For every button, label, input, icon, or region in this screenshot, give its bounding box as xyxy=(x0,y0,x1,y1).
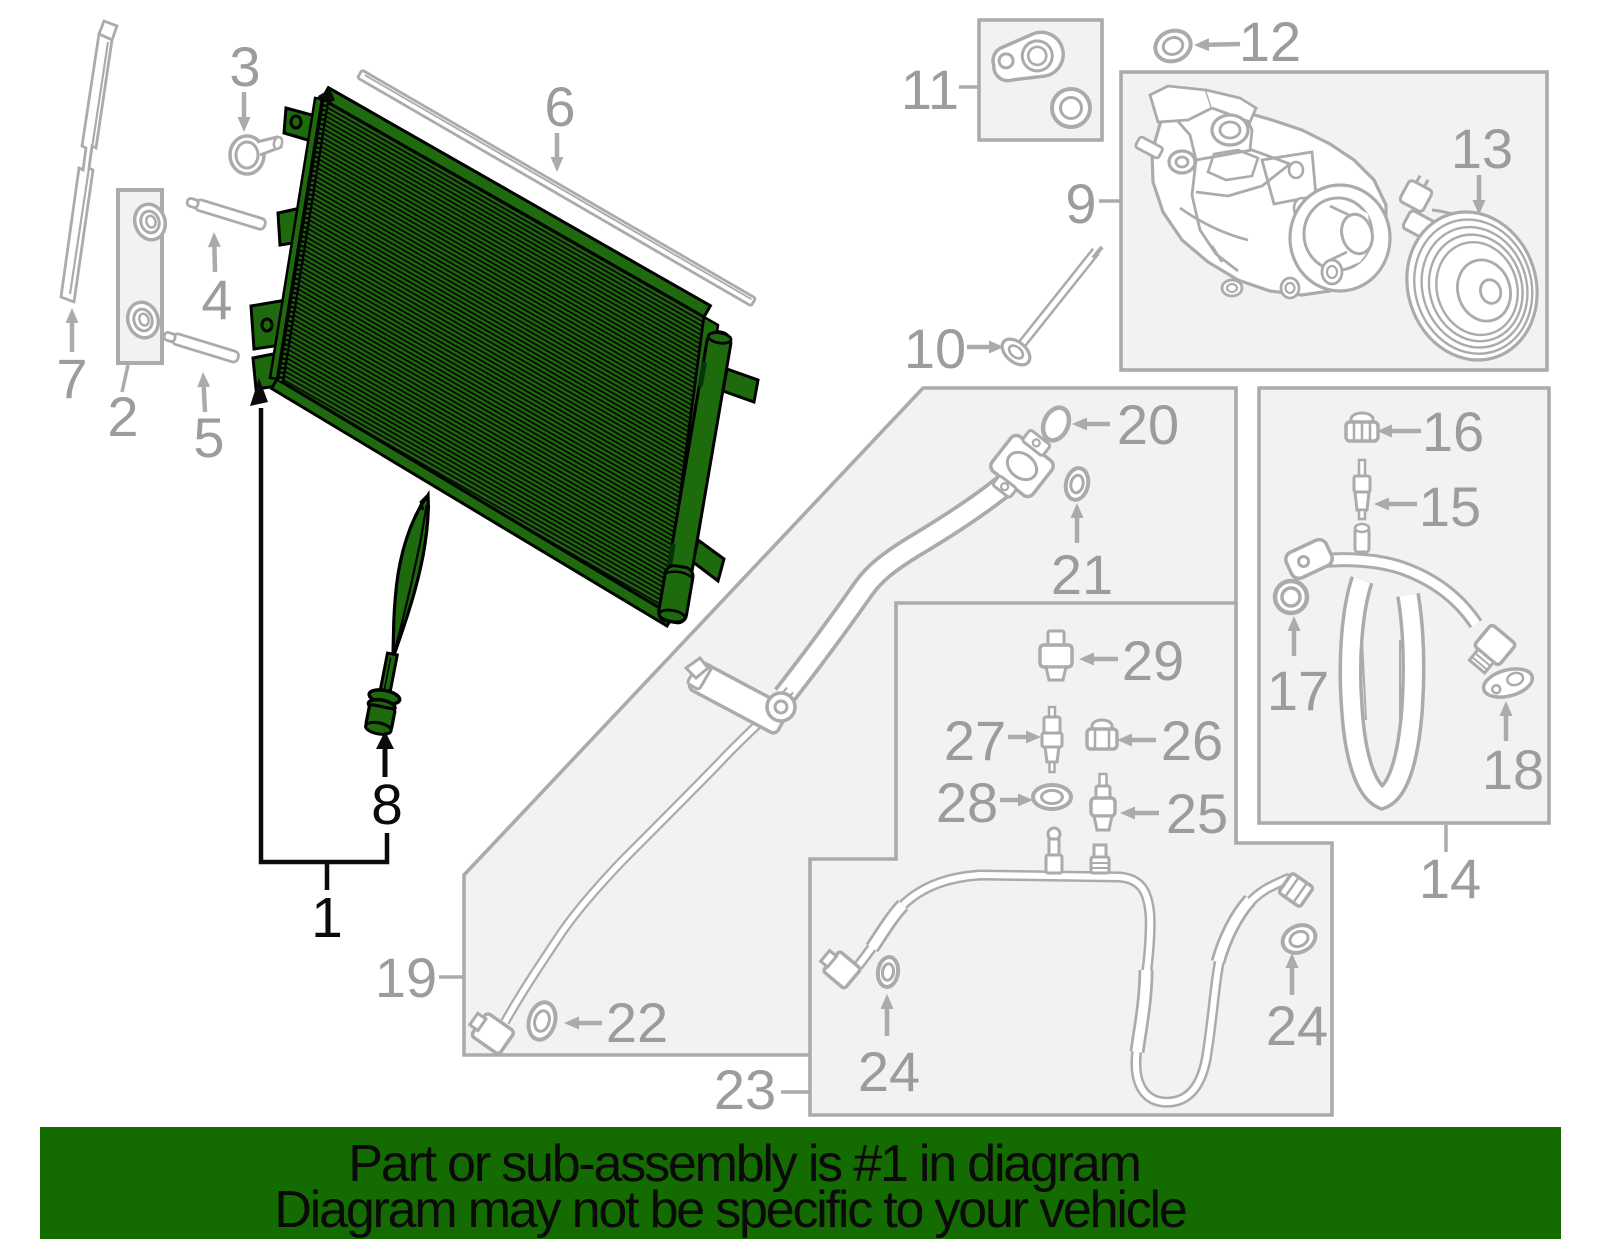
svg-text:27: 27 xyxy=(944,709,1006,772)
svg-text:3: 3 xyxy=(229,35,260,98)
svg-text:23: 23 xyxy=(714,1058,776,1121)
svg-text:22: 22 xyxy=(606,991,668,1054)
svg-text:21: 21 xyxy=(1051,543,1113,606)
svg-text:18: 18 xyxy=(1482,738,1544,801)
svg-text:11: 11 xyxy=(901,58,959,121)
svg-text:2: 2 xyxy=(107,385,138,448)
svg-text:24: 24 xyxy=(858,1040,920,1103)
svg-text:8: 8 xyxy=(371,773,403,837)
svg-text:4: 4 xyxy=(201,268,232,331)
svg-text:29: 29 xyxy=(1122,629,1184,692)
svg-text:10: 10 xyxy=(904,317,966,380)
svg-text:9: 9 xyxy=(1065,172,1096,235)
svg-text:7: 7 xyxy=(56,347,87,410)
svg-text:15: 15 xyxy=(1419,475,1481,538)
svg-text:12: 12 xyxy=(1239,10,1301,73)
svg-text:19: 19 xyxy=(375,946,437,1009)
svg-text:26: 26 xyxy=(1161,709,1223,772)
svg-text:25: 25 xyxy=(1166,782,1228,845)
svg-text:14: 14 xyxy=(1419,847,1481,910)
svg-text:16: 16 xyxy=(1422,400,1484,463)
svg-text:6: 6 xyxy=(544,75,575,138)
svg-text:1: 1 xyxy=(311,886,343,950)
svg-text:20: 20 xyxy=(1117,393,1179,456)
svg-text:24: 24 xyxy=(1266,994,1328,1057)
svg-text:Diagram may not be specific to: Diagram may not be specific to your vehi… xyxy=(274,1181,1185,1239)
svg-text:17: 17 xyxy=(1267,659,1329,722)
svg-text:5: 5 xyxy=(193,406,224,469)
svg-text:28: 28 xyxy=(936,771,998,834)
svg-text:13: 13 xyxy=(1451,117,1513,180)
